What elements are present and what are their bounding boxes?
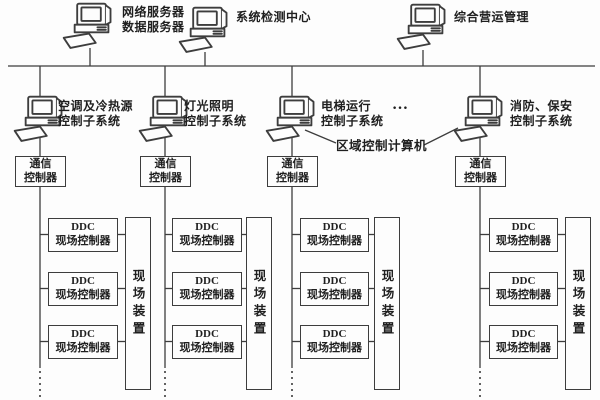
ddc-controller-box: DDC 现场控制器 (48, 325, 118, 359)
ddc-controller-box: DDC 现场控制器 (172, 218, 242, 252)
subsystem-label-elevator: 电梯运行 控制子系统 (321, 99, 384, 129)
comm-controller-box: 通信 控制器 (140, 156, 191, 187)
comm-controller-box: 通信 控制器 (15, 156, 66, 187)
computer-icon (453, 95, 507, 143)
top-computer-label-network-data-server: 网络服务器 数据服务器 (122, 5, 185, 35)
ddc-controller-box: DDC 现场控制器 (489, 325, 558, 359)
field-device-box: 现场装置 (125, 217, 151, 390)
bas-architecture-diagram: 网络服务器 数据服务器 系统检测中心 综合营运管理 空调及冷热源 控制子系统 灯… (0, 0, 600, 400)
ddc-controller-box: DDC 现场控制器 (300, 218, 369, 252)
ddc-controller-box: DDC 现场控制器 (172, 325, 242, 359)
ddc-controller-box: DDC 现场控制器 (489, 272, 558, 306)
computer-icon (178, 6, 232, 54)
computer-icon (265, 95, 319, 143)
comm-controller-box: 通信 控制器 (267, 156, 318, 187)
computer-icon (62, 2, 116, 50)
ddc-controller-box: DDC 现场控制器 (489, 218, 558, 252)
field-device-box: 现场装置 (246, 217, 272, 390)
top-computer-label-system-monitor-center: 系统检测中心 (236, 10, 311, 25)
comm-controller-box: 通信 控制器 (455, 156, 506, 187)
field-device-box: 现场装置 (565, 217, 591, 390)
ddc-controller-box: DDC 现场控制器 (48, 272, 118, 306)
area-control-computer-label: 区域控制计算机 (336, 139, 427, 155)
ddc-controller-box: DDC 现场控制器 (300, 325, 369, 359)
ddc-controller-box: DDC 现场控制器 (48, 218, 118, 252)
field-device-box: 现场装置 (374, 217, 400, 390)
top-computer-label-operations-management: 综合营运管理 (454, 10, 529, 25)
subsystem-label-hvac: 空调及冷热源 控制子系统 (58, 99, 133, 129)
subsystem-label-lighting: 灯光照明 控制子系统 (184, 99, 247, 129)
ddc-controller-box: DDC 现场控制器 (172, 272, 242, 306)
subsystem-label-fire-security: 消防、保安 控制子系统 (510, 99, 573, 129)
computer-icon (396, 3, 450, 51)
more-subsystems-ellipsis: … (392, 96, 410, 114)
ddc-controller-box: DDC 现场控制器 (300, 272, 369, 306)
